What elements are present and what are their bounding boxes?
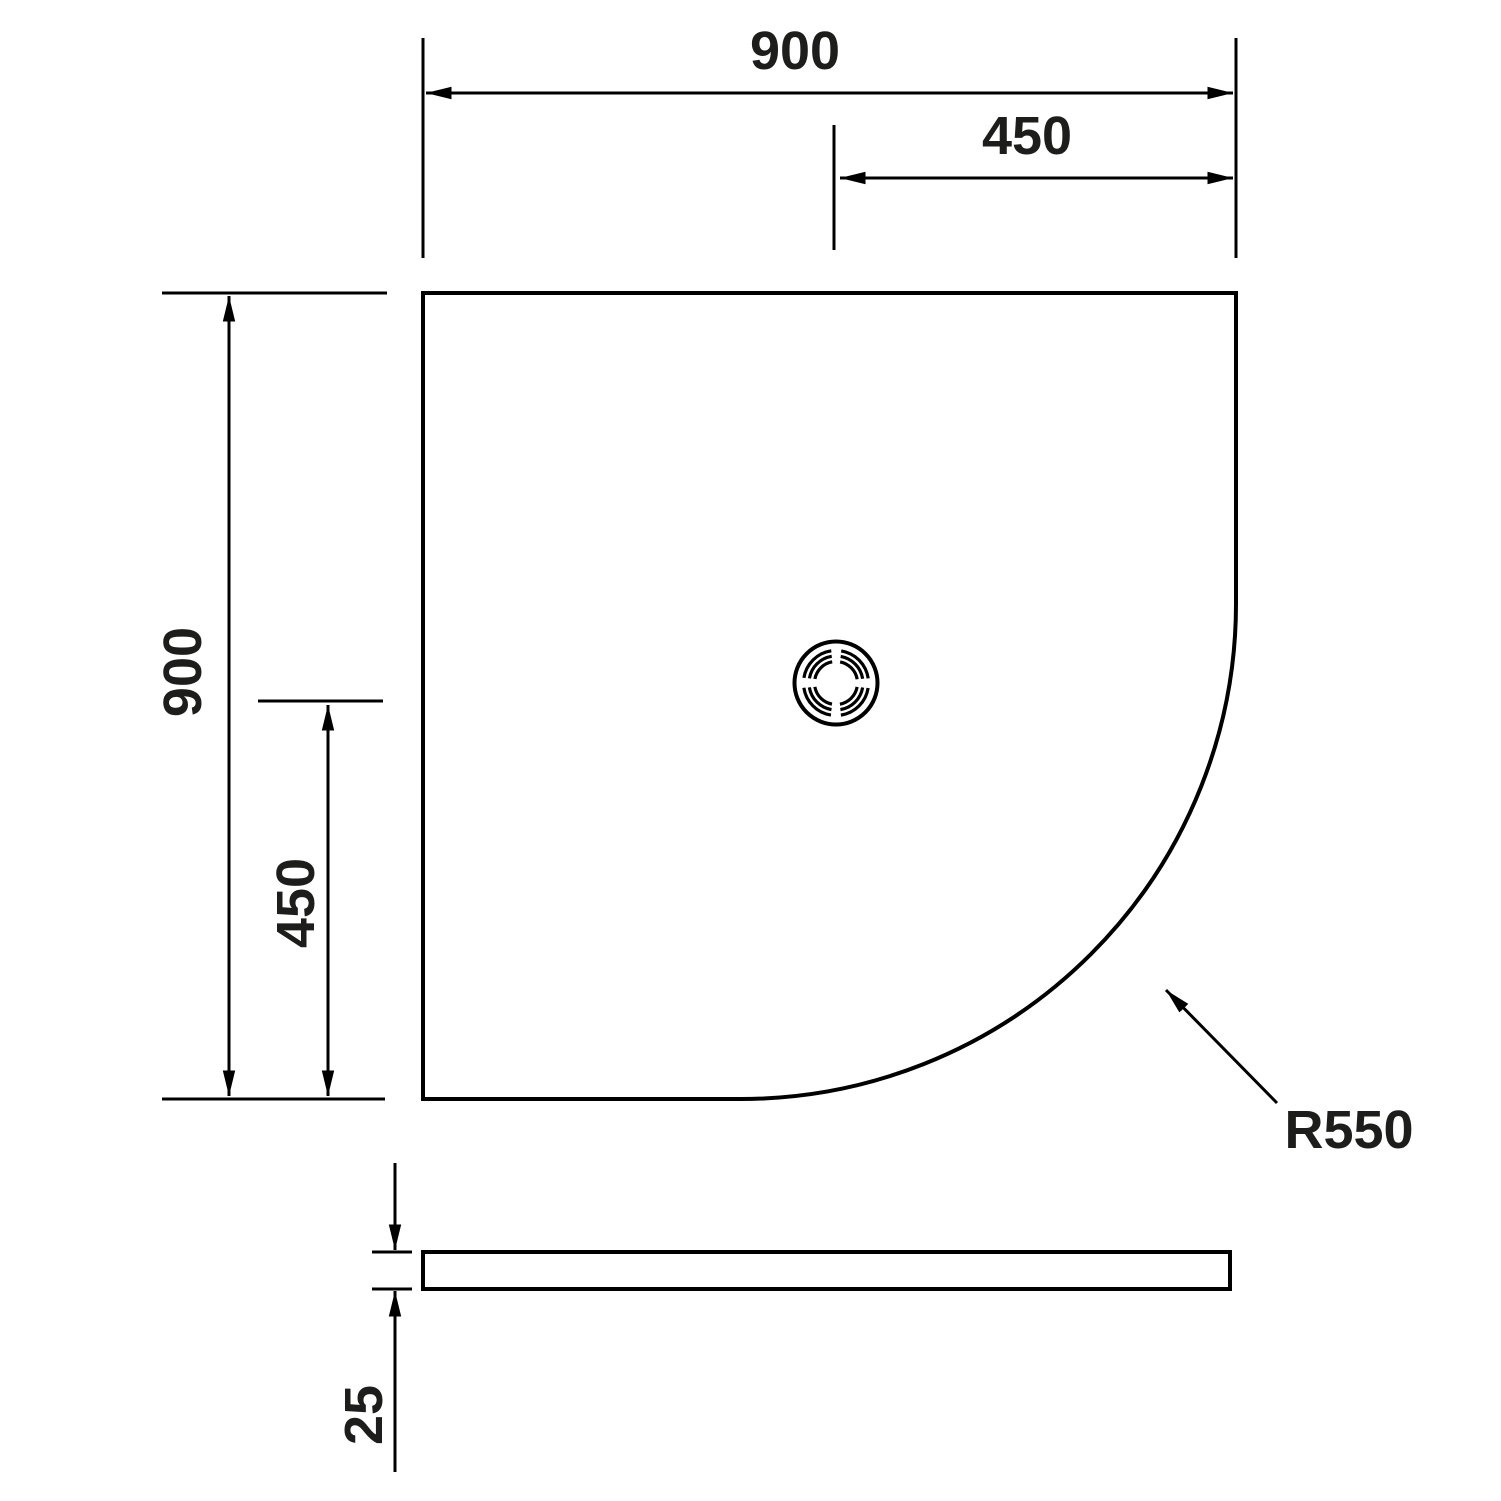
dimension-top-half-width: 450 [834,106,1233,250]
radius-leader-line [1166,990,1277,1103]
dimension-label-corner-radius: R550 [1284,1100,1413,1160]
dimension-left-half-height: 450 [258,701,383,1096]
dimension-drawing: 900 450 900 450 R550 [0,0,1501,1501]
dimension-label-top-width: 900 [750,21,840,81]
drain-slot-ring-middle [809,656,863,710]
dimension-label-top-half-width: 450 [982,106,1072,166]
drain-icon [795,642,878,725]
radius-callout: R550 [1166,990,1414,1160]
dimension-label-thickness: 25 [334,1385,394,1445]
dimension-label-left-half-height: 450 [266,858,326,948]
side-view-bar [423,1252,1230,1289]
dimension-top-width: 900 [423,21,1236,258]
drain-slot-ring-inner [815,662,858,705]
tray-outline [423,293,1236,1099]
drain-slot-ring-outer [804,651,869,716]
drawing-canvas: 900 450 900 450 R550 [0,0,1501,1501]
drain-outer-ring [795,642,878,725]
side-view: 25 [334,1163,1230,1472]
dimension-label-left-height: 900 [153,627,213,717]
dimension-left-height: 900 [153,293,387,1099]
